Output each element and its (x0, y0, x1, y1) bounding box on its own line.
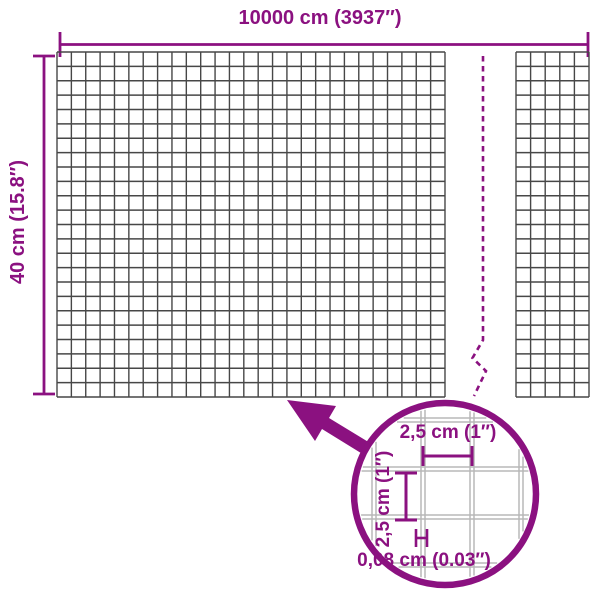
mesh-width-label: 2,5 cm (1″) (400, 422, 497, 443)
top-width-dimension: 10000 cm (3937″) (60, 7, 588, 57)
mesh-height-label: 2,5 cm (1″) (373, 451, 394, 548)
roll-height-label: 40 cm (15.8″) (7, 160, 29, 284)
left-height-dimension: 40 cm (15.8″) (7, 56, 55, 394)
mesh-panel-main (57, 52, 445, 397)
roll-width-label: 10000 cm (3937″) (238, 7, 401, 29)
detail-circle: 2,5 cm (1″) 2,5 cm (1″) 0,08 cm (0.03″) (354, 403, 536, 585)
zoom-arrow-icon (287, 400, 375, 458)
product-dimension-diagram: 10000 cm (3937″) 40 cm (15.8″) 2,5 cm (1… (0, 0, 600, 600)
diagram-canvas: 10000 cm (3937″) 40 cm (15.8″) 2,5 cm (1… (0, 0, 600, 600)
mesh-break-line (473, 56, 487, 396)
mesh-panel-right (516, 52, 589, 397)
